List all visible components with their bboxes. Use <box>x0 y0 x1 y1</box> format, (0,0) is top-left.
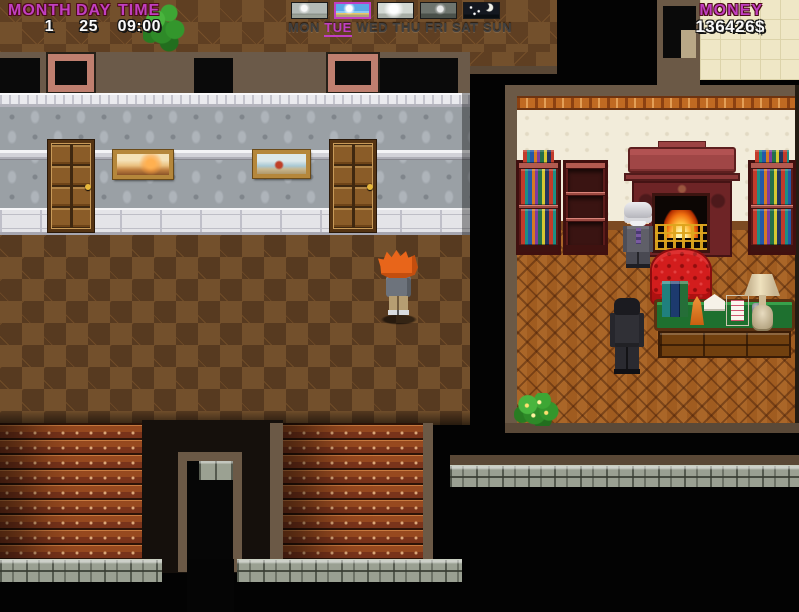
forecast-icon-sunny-selected <box>334 2 371 19</box>
firebox <box>652 193 710 253</box>
forecast-icon-bright <box>377 2 414 19</box>
empty-shelf-row <box>568 169 603 192</box>
empty-shelf-row <box>568 222 603 245</box>
npc-body <box>610 313 644 347</box>
day-label: SAT <box>452 20 479 37</box>
money-value: 136426$ <box>672 17 765 37</box>
forecast-icon-overcast <box>291 2 328 19</box>
crown-molding <box>0 93 470 107</box>
day-label: THU <box>393 20 421 37</box>
desk-books <box>662 281 688 317</box>
shelf-base <box>751 245 793 252</box>
flowering-bush <box>514 393 560 426</box>
empty-shelf-row <box>568 196 603 219</box>
books-row <box>521 169 556 205</box>
lamp-shade <box>744 274 780 296</box>
stair-frame <box>423 423 433 561</box>
painting-sunset <box>113 150 173 179</box>
fire-grate <box>655 224 707 250</box>
npc-elderly-man[interactable] <box>618 202 658 268</box>
fireplace-mantle <box>628 147 736 173</box>
npc-hair <box>614 298 640 315</box>
staircase-middle[interactable] <box>283 423 423 561</box>
hallway-door-left[interactable] <box>48 140 94 232</box>
time-value: 09:00 <box>104 18 161 36</box>
books-row <box>753 169 791 205</box>
weekday-row: MON TUE WED THU FRI SAT SUN <box>288 20 512 37</box>
corridor-opening <box>379 58 458 93</box>
day-value: 25 <box>66 18 98 36</box>
weather-forecast-row <box>291 2 500 19</box>
bookshelf-empty[interactable] <box>563 160 608 255</box>
stone-path[interactable] <box>450 465 799 487</box>
hallway-door-right[interactable] <box>330 140 376 232</box>
shelf-base <box>566 245 605 252</box>
bookshelf-filled[interactable] <box>516 160 561 255</box>
npc-suited-man[interactable] <box>606 298 648 376</box>
forecast-icon-dim <box>420 2 457 19</box>
books-row <box>753 209 791 245</box>
day-label: SUN <box>483 20 512 37</box>
stone-ledge-middle[interactable] <box>237 559 462 582</box>
staircase-left[interactable] <box>0 423 142 561</box>
doorway-opening <box>187 559 234 612</box>
stair-frame <box>270 423 283 561</box>
fireplace-shelf <box>624 173 740 181</box>
npc-shoes <box>614 369 640 374</box>
shelf-base <box>519 245 558 252</box>
floor-edge <box>470 66 557 74</box>
day-label: MON <box>288 20 320 37</box>
lamp-base <box>752 305 773 329</box>
bookshelf-filled-right[interactable] <box>748 160 796 255</box>
month-value: 1 <box>28 18 54 36</box>
study-wall-edge-right <box>795 85 799 433</box>
player-legs <box>389 296 408 311</box>
player-shoes <box>388 310 409 315</box>
path-edge <box>450 455 799 465</box>
corridor-opening <box>0 58 40 93</box>
upper-door-frame <box>48 54 94 92</box>
npc-hair <box>624 202 652 218</box>
upper-corridor[interactable] <box>0 52 470 93</box>
books-on-shelf-top <box>523 150 554 163</box>
upper-floor-right <box>470 52 557 66</box>
desk-drawers <box>658 331 791 358</box>
player-hair <box>378 250 418 278</box>
corridor-opening <box>194 58 233 93</box>
npc-legs <box>615 347 639 369</box>
player-shadow <box>380 314 418 325</box>
npc-tie <box>636 228 641 244</box>
day-label: WED <box>356 20 388 37</box>
stone-ledge-left[interactable] <box>0 559 162 582</box>
npc-shoes <box>626 264 650 268</box>
day-label: TUE <box>324 20 352 37</box>
game-viewport[interactable]: MONTH DAY TIME 1 25 09:00 MON TUE WED TH… <box>0 0 799 612</box>
books-row <box>521 209 556 245</box>
forecast-icon-night <box>463 2 500 19</box>
npc-legs <box>626 252 650 264</box>
painting-seascape <box>253 150 310 178</box>
player-body <box>386 276 411 297</box>
upper-door-frame <box>328 54 378 92</box>
npc-mustache <box>630 221 646 226</box>
lower-door-frame[interactable] <box>178 452 242 572</box>
wall-shadow <box>462 93 470 235</box>
books-on-shelf-top <box>755 150 789 163</box>
day-label: FRI <box>425 20 447 37</box>
table-lamp <box>744 274 781 332</box>
study-wall-trim <box>517 96 795 110</box>
player-character <box>376 250 422 328</box>
